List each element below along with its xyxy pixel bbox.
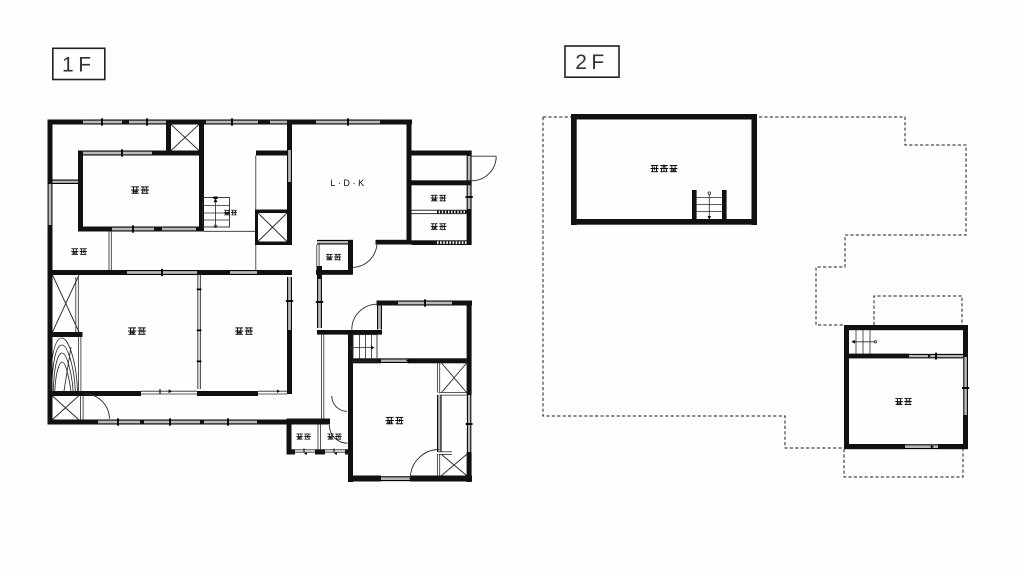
svg-text:L·D·K: L·D·K [330,178,367,188]
svg-text:1F: 1F [62,54,96,77]
svg-text:2F: 2F [575,51,609,74]
